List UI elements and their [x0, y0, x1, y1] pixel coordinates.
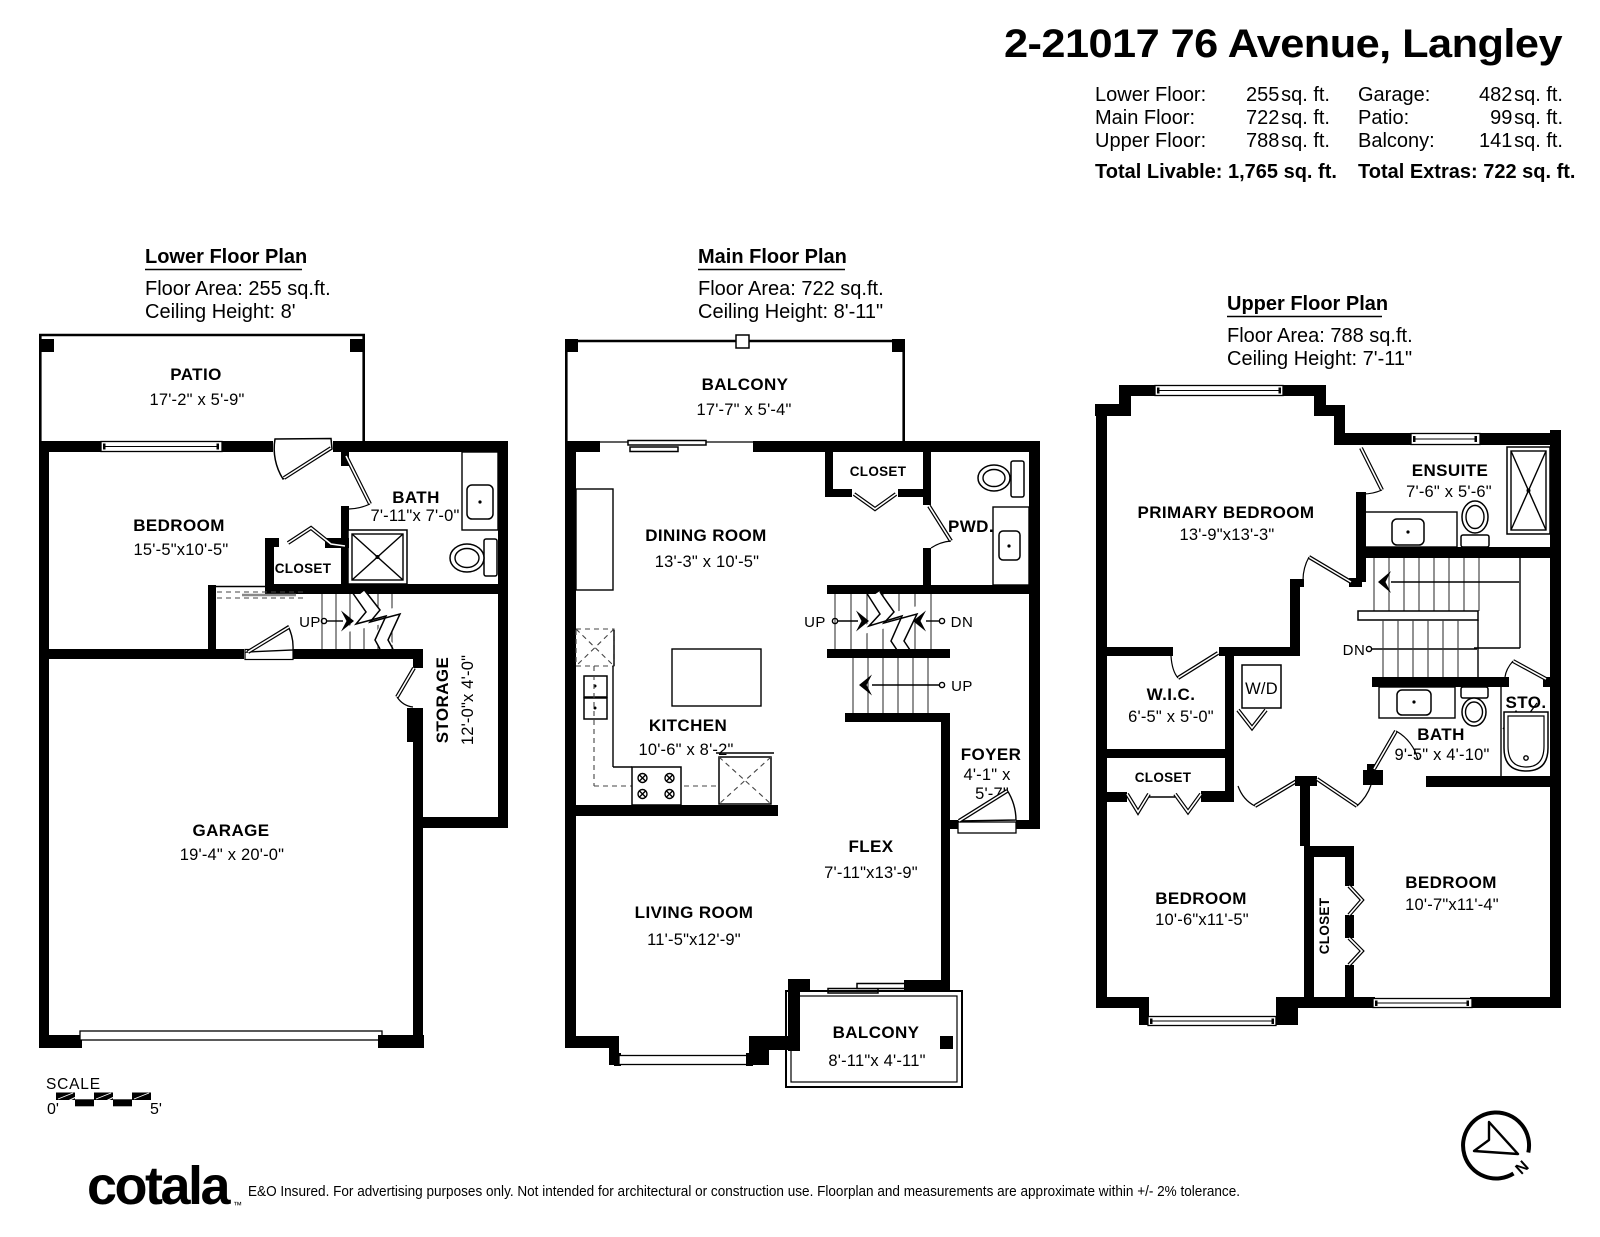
- svg-text:Floor Area: 788 sq.ft.: Floor Area: 788 sq.ft.: [1227, 325, 1413, 347]
- svg-text:PATIO: PATIO: [170, 365, 221, 384]
- svg-text:UP: UP: [804, 614, 826, 631]
- svg-text:Balcony:: Balcony:: [1358, 130, 1435, 152]
- svg-text:Lower Floor:: Lower Floor:: [1095, 84, 1206, 106]
- svg-text:Total Extras: 722 sq. ft.: Total Extras: 722 sq. ft.: [1358, 161, 1575, 183]
- svg-text:W/D: W/D: [1245, 680, 1278, 698]
- svg-text:6'-5" x 5'-0": 6'-5" x 5'-0": [1128, 708, 1214, 726]
- svg-text:Patio:: Patio:: [1358, 107, 1409, 129]
- svg-text:GARAGE: GARAGE: [192, 821, 269, 840]
- svg-text:Garage:: Garage:: [1358, 84, 1430, 106]
- svg-text:DN: DN: [1343, 642, 1366, 659]
- svg-text:12'-0"x 4'-0": 12'-0"x 4'-0": [459, 655, 477, 745]
- svg-text:Main Floor:: Main Floor:: [1095, 107, 1195, 129]
- svg-text:4'-1" x: 4'-1" x: [963, 766, 1011, 784]
- svg-text:PRIMARY BEDROOM: PRIMARY BEDROOM: [1138, 503, 1315, 522]
- svg-text:UP: UP: [299, 614, 321, 631]
- svg-text:BATH: BATH: [1417, 725, 1465, 744]
- svg-text:2-21017 76 Avenue, Langley: 2-21017 76 Avenue, Langley: [1004, 22, 1563, 66]
- svg-text:19'-4" x 20'-0": 19'-4" x 20'-0": [180, 846, 284, 864]
- svg-text:BEDROOM: BEDROOM: [1405, 873, 1497, 892]
- svg-text:Ceiling Height: 7'-11": Ceiling Height: 7'-11": [1227, 348, 1412, 370]
- svg-text:Main Floor Plan: Main Floor Plan: [698, 246, 847, 268]
- svg-text:Total Livable: 1,765 sq. ft.: Total Livable: 1,765 sq. ft.: [1095, 161, 1337, 183]
- svg-text:11'-5"x12'-9": 11'-5"x12'-9": [647, 931, 741, 949]
- svg-text:9'-5" x 4'-10": 9'-5" x 4'-10": [1394, 746, 1489, 764]
- svg-text:17'-7" x 5'-4": 17'-7" x 5'-4": [696, 401, 791, 419]
- svg-text:255 sq. ft.: 255 sq. ft.: [1246, 84, 1330, 106]
- svg-text:FOYER: FOYER: [961, 745, 1022, 764]
- svg-text:15'-5"x10'-5": 15'-5"x10'-5": [134, 541, 229, 559]
- svg-text:BATH: BATH: [392, 488, 440, 507]
- svg-text:Ceiling Height: 8'-11": Ceiling Height: 8'-11": [698, 301, 883, 323]
- svg-text:ENSUITE: ENSUITE: [1412, 461, 1488, 480]
- svg-text:BALCONY: BALCONY: [833, 1023, 920, 1042]
- svg-text:BEDROOM: BEDROOM: [1155, 889, 1247, 908]
- svg-text:CLOSET: CLOSET: [275, 561, 332, 576]
- svg-text:E&O Insured. For advertising p: E&O Insured. For advertising purposes on…: [248, 1184, 1240, 1200]
- svg-text:PWD.: PWD.: [948, 517, 994, 536]
- svg-text:BEDROOM: BEDROOM: [133, 516, 225, 535]
- svg-text:W.I.C.: W.I.C.: [1147, 685, 1196, 704]
- svg-text:Upper Floor:: Upper Floor:: [1095, 130, 1206, 152]
- svg-text:FLEX: FLEX: [848, 837, 893, 856]
- svg-text:141 sq. ft.: 141 sq. ft.: [1479, 130, 1563, 152]
- svg-text:BALCONY: BALCONY: [702, 375, 789, 394]
- svg-text:CLOSET: CLOSET: [850, 464, 907, 479]
- svg-text:5': 5': [150, 1101, 162, 1118]
- svg-text:17'-2" x 5'-9": 17'-2" x 5'-9": [149, 391, 244, 409]
- svg-text:STO.: STO.: [1506, 693, 1547, 712]
- svg-text:™: ™: [233, 1200, 242, 1210]
- svg-text:10'-6"x11'-5": 10'-6"x11'-5": [1155, 911, 1249, 929]
- svg-text:7'-11"x 7'-0": 7'-11"x 7'-0": [370, 507, 459, 525]
- svg-text:0': 0': [47, 1101, 59, 1118]
- svg-text:Lower Floor Plan: Lower Floor Plan: [145, 246, 307, 268]
- svg-text:10'-7"x11'-4": 10'-7"x11'-4": [1405, 896, 1499, 914]
- svg-text:7'-6" x 5'-6": 7'-6" x 5'-6": [1406, 483, 1492, 501]
- svg-text:DINING ROOM: DINING ROOM: [645, 526, 767, 545]
- svg-text:DN: DN: [951, 614, 974, 631]
- svg-text:7'-11"x13'-9": 7'-11"x13'-9": [824, 864, 918, 882]
- svg-text:cotala: cotala: [87, 1156, 232, 1216]
- svg-text:Floor Area: 722 sq.ft.: Floor Area: 722 sq.ft.: [698, 278, 884, 300]
- svg-text:8'-11"x 4'-11": 8'-11"x 4'-11": [828, 1052, 925, 1070]
- svg-text:LIVING ROOM: LIVING ROOM: [635, 903, 754, 922]
- svg-text:722 sq. ft.: 722 sq. ft.: [1246, 107, 1330, 129]
- svg-text:UP: UP: [951, 678, 973, 695]
- svg-text:CLOSET: CLOSET: [1317, 897, 1332, 954]
- svg-text:Upper Floor Plan: Upper Floor Plan: [1227, 293, 1388, 315]
- svg-text:788 sq. ft.: 788 sq. ft.: [1246, 130, 1330, 152]
- svg-text:Floor Area: 255 sq.ft.: Floor Area: 255 sq.ft.: [145, 278, 331, 300]
- svg-text:99 sq. ft.: 99 sq. ft.: [1490, 107, 1563, 129]
- svg-text:Ceiling Height: 8': Ceiling Height: 8': [145, 301, 296, 323]
- svg-text:CLOSET: CLOSET: [1135, 770, 1192, 785]
- svg-text:STORAGE: STORAGE: [433, 657, 452, 744]
- svg-text:SCALE: SCALE: [46, 1076, 101, 1093]
- svg-text:13'-9"x13'-3": 13'-9"x13'-3": [1180, 526, 1275, 544]
- svg-text:13'-3" x 10'-5": 13'-3" x 10'-5": [655, 553, 759, 571]
- svg-text:482 sq. ft.: 482 sq. ft.: [1479, 84, 1563, 106]
- svg-text:KITCHEN: KITCHEN: [649, 716, 727, 735]
